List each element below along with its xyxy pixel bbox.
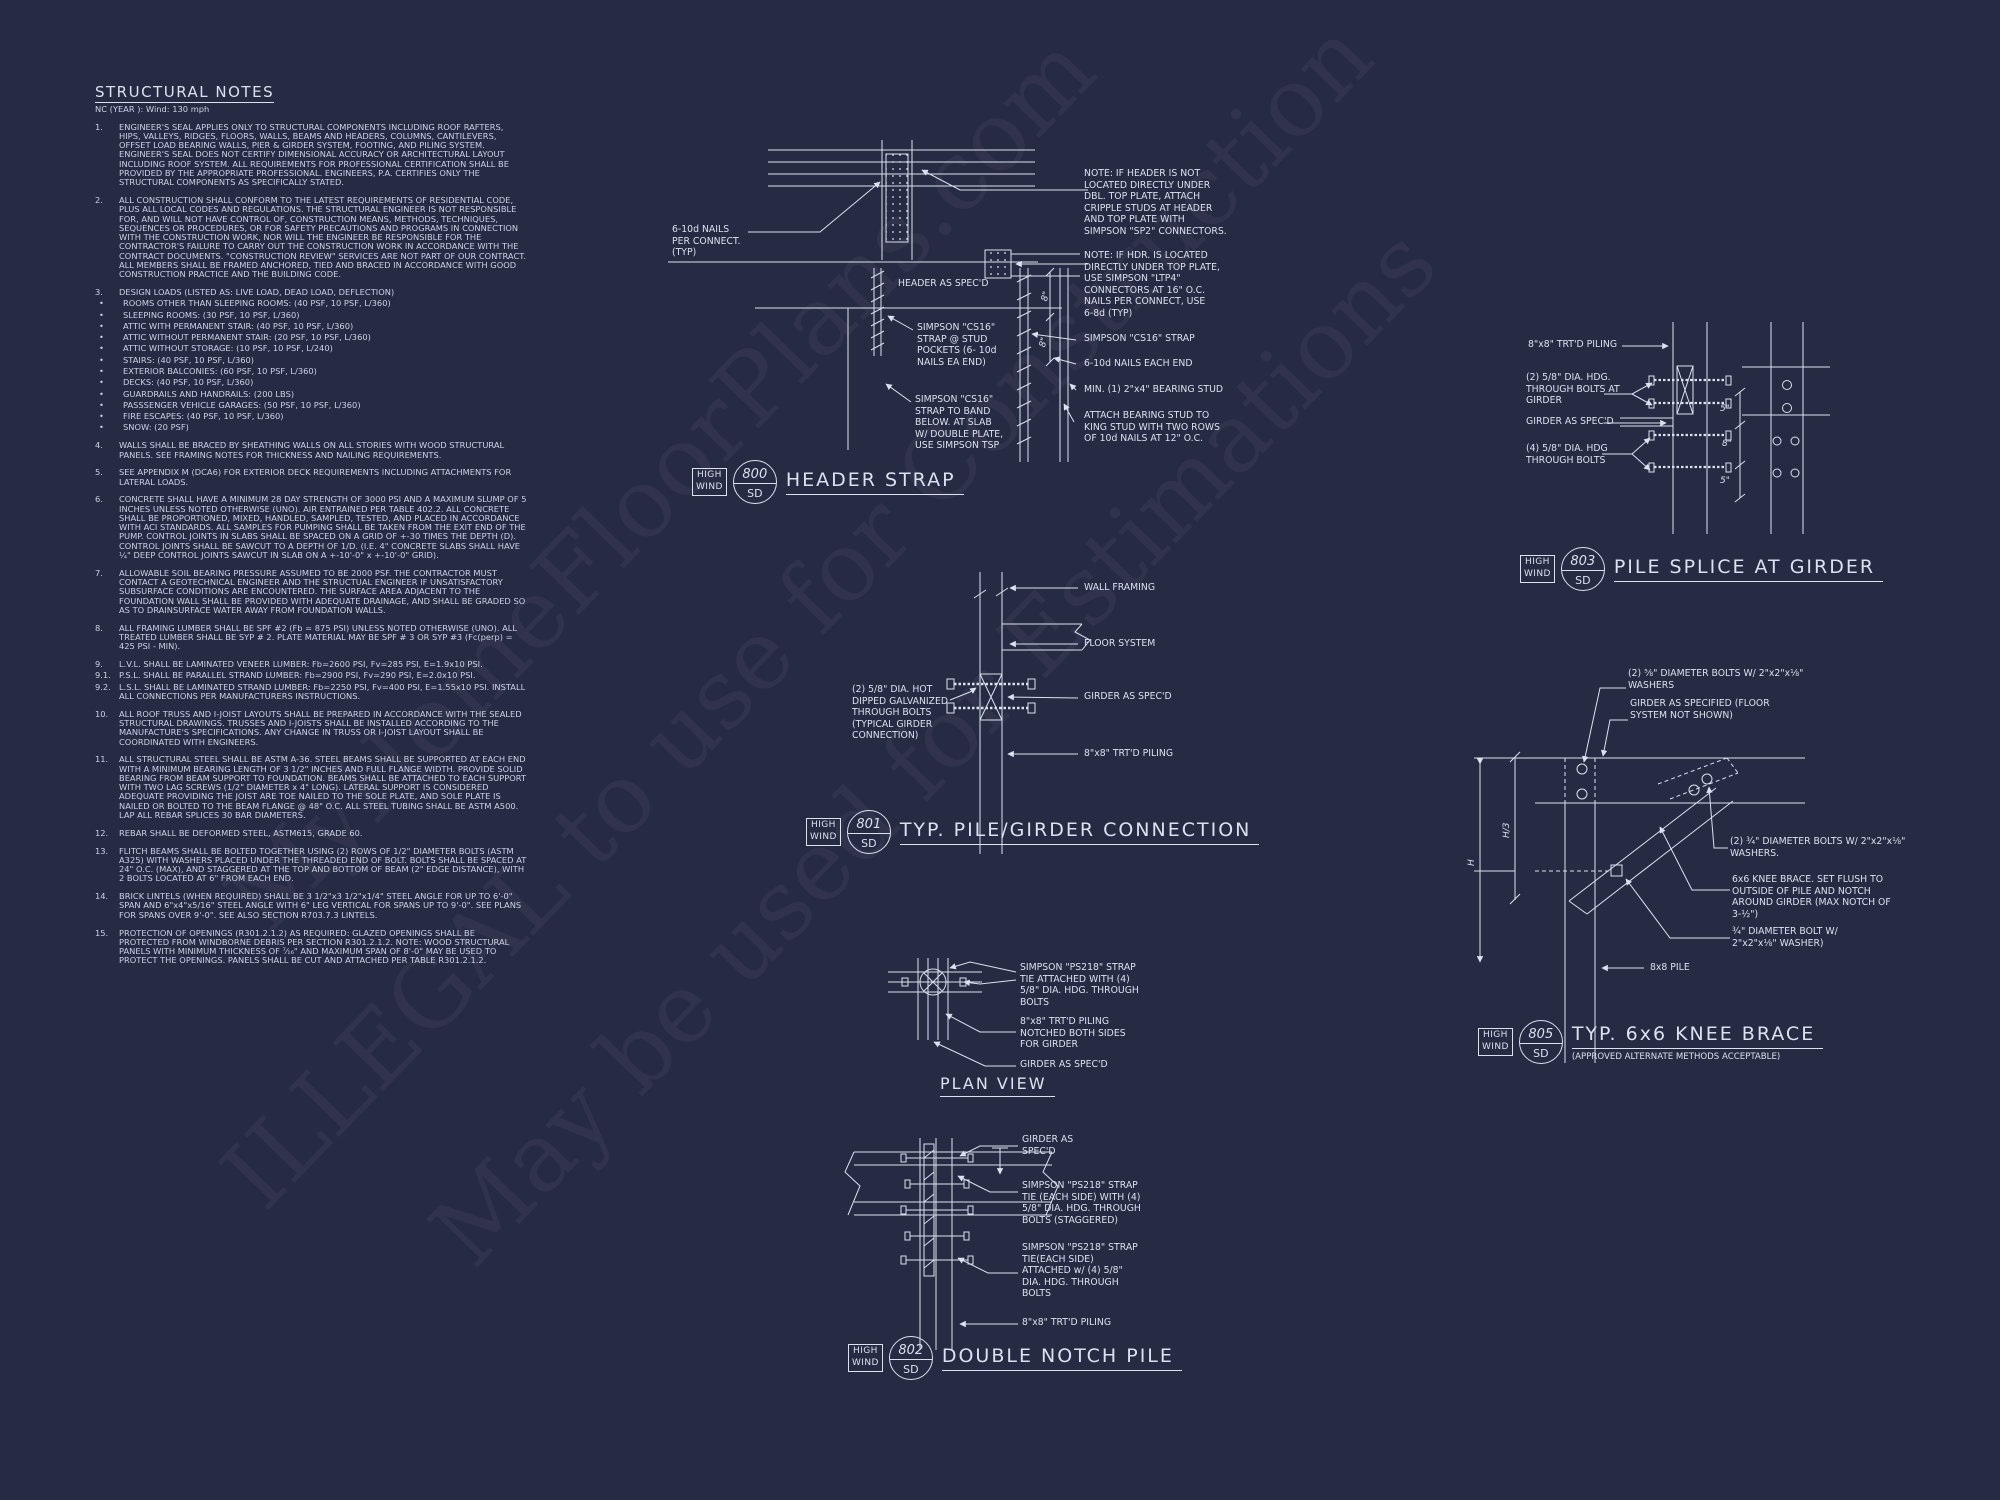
note-text: STAIRS: (40 PSF, 10 PSF, L/360) xyxy=(123,356,527,365)
note-item: 2. ALL CONSTRUCTION SHALL CONFORM TO THE… xyxy=(95,196,527,280)
detail-pile-girder-connection: (2) 5/8" DIA. HOT DIPPED GALVANIZED THRO… xyxy=(630,558,1450,868)
note-item: 5. SEE APPENDIX M (DCA6) FOR EXTERIOR DE… xyxy=(95,468,527,487)
note-text: EXTERIOR BALCONIES: (60 PSF, 10 PSF, L/3… xyxy=(123,367,527,376)
detail-sheet: SD xyxy=(734,484,776,503)
note-number: • xyxy=(95,356,120,365)
note-text: ALL CONSTRUCTION SHALL CONFORM TO THE LA… xyxy=(119,196,527,280)
note-item: 9.1. P.S.L. SHALL BE PARALLEL STRAND LUM… xyxy=(95,671,527,680)
dim-h: H xyxy=(1467,859,1477,866)
note-item: 3. DESIGN LOADS (LISTED AS: LIVE LOAD, D… xyxy=(95,288,527,297)
tag-high: HIGH xyxy=(697,470,722,482)
detail-title-pile-splice: HIGH WIND 803 SD PILE SPLICE AT GIRDER xyxy=(1520,547,1883,591)
detail-title: PILE SPLICE AT GIRDER xyxy=(1614,556,1883,582)
note-text: REBAR SHALL BE DEFORMED STEEL, ASTM615, … xyxy=(119,829,527,838)
detail-title-knee-brace: HIGH WIND 805 SD TYP. 6x6 KNEE BRACE (AP… xyxy=(1478,1020,1823,1064)
note-number: • xyxy=(95,390,120,399)
note-item: 9. L.V.L. SHALL BE LAMINATED VENEER LUMB… xyxy=(95,660,527,669)
tag-high: HIGH xyxy=(1483,1030,1508,1042)
label-through-bolts: (2) 5/8" DIA. HOT DIPPED GALVANIZED THRO… xyxy=(852,684,948,742)
label-piling-notched: 8"x8" TRT'D PILING NOTCHED BOTH SIDES FO… xyxy=(1020,1016,1126,1051)
blueprint-sheet: MyHomeFloorPlans.comILLEGAL to use for C… xyxy=(0,0,2000,1500)
note-number: 6. xyxy=(95,495,116,560)
label-girder-as-specd: GIRDER AS SPEC'D xyxy=(1020,1059,1108,1071)
note-item: • GUARDRAILS AND HANDRAILS: (200 LBS) xyxy=(95,390,527,399)
detail-number: 803 xyxy=(1562,548,1604,571)
dim-5in-bot: 5" xyxy=(1720,476,1730,486)
tag-high: HIGH xyxy=(853,1346,878,1358)
note-item: 6. CONCRETE SHALL HAVE A MINIMUM 28 DAY … xyxy=(95,495,527,560)
label-girder-as-specified: GIRDER AS SPECIFIED (FLOOR SYSTEM NOT SH… xyxy=(1630,698,1770,721)
detail-title: HEADER STRAP xyxy=(786,469,964,495)
detail-subtitle: (APPROVED ALTERNATE METHODS ACCEPTABLE) xyxy=(1572,1052,1823,1062)
detail-pile-splice: 8"x8" TRT'D PILING (2) 5/8" DIA. HDG. TH… xyxy=(1470,242,1930,597)
note-text: FLITCH BEAMS SHALL BE BOLTED TOGETHER US… xyxy=(119,847,527,884)
note-text: SNOW: (20 PSF) xyxy=(123,423,527,432)
tag-high: HIGH xyxy=(811,820,836,832)
note-number: 2. xyxy=(95,196,116,280)
label-header-as-specd: HEADER AS SPEC'D xyxy=(898,278,988,290)
high-wind-tag: HIGH WIND xyxy=(1478,1028,1513,1055)
note-item: • ROOMS OTHER THAN SLEEPING ROOMS: (40 P… xyxy=(95,299,527,308)
label-trtd-piling: 8"x8" TRT'D PILING xyxy=(1084,748,1173,760)
detail-bubble: 803 SD xyxy=(1561,547,1605,591)
detail-number: 805 xyxy=(1520,1021,1562,1044)
detail-title: PLAN VIEW xyxy=(940,1074,1055,1097)
note-item: • SLEEPING ROOMS: (30 PSF, 10 PSF, L/360… xyxy=(95,311,527,320)
detail-bubble: 800 SD xyxy=(733,460,777,504)
note-number: • xyxy=(95,378,120,387)
note-number: 14. xyxy=(95,892,116,920)
label-strap-stud-pockets: SIMPSON "CS16" STRAP @ STUD POCKETS (6- … xyxy=(917,322,997,368)
note-number: 5. xyxy=(95,468,116,487)
dim-8in-mid: 8" xyxy=(1722,439,1732,449)
note-item: • ATTIC WITHOUT STORAGE: (10 PSF, 10 PSF… xyxy=(95,344,527,353)
label-trtd-piling: 8"x8" TRT'D PILING xyxy=(1528,339,1617,351)
label-ps218-staggered: SIMPSON "PS218" STRAP TIE (EACH SIDE) WI… xyxy=(1022,1180,1141,1226)
note-number: 13. xyxy=(95,847,116,884)
note-number: 10. xyxy=(95,710,116,747)
dim-h3: H/3 xyxy=(1502,822,1512,838)
label-strap-to-band: SIMPSON "CS16" STRAP TO BAND BELOW. AT S… xyxy=(915,394,1003,452)
detail-sheet: SD xyxy=(1562,571,1604,590)
detail-title: TYP. 6x6 KNEE BRACE xyxy=(1572,1023,1823,1049)
note-item: 11. ALL STRUCTURAL STEEL SHALL BE ASTM A… xyxy=(95,755,527,820)
note-number: 11. xyxy=(95,755,116,820)
note-number: 3. xyxy=(95,288,116,297)
note-item: 10. ALL ROOF TRUSS AND I-JOIST LAYOUTS S… xyxy=(95,710,527,747)
note-text: ALLOWABLE SOIL BEARING PRESSURE ASSUMED … xyxy=(119,569,527,615)
note-item: 12. REBAR SHALL BE DEFORMED STEEL, ASTM6… xyxy=(95,829,527,838)
note-number: • xyxy=(95,311,120,320)
note-text: ALL FRAMING LUMBER SHALL BE SPF #2 (Fb =… xyxy=(119,624,527,652)
label-floor-system: FLOOR SYSTEM xyxy=(1084,638,1155,650)
tag-wind: WIND xyxy=(1482,1042,1509,1054)
note-item: 7. ALLOWABLE SOIL BEARING PRESSURE ASSUM… xyxy=(95,569,527,615)
label-girder-as-specd: GIRDER AS SPEC'D xyxy=(1084,691,1172,703)
label-cs16-strap: SIMPSON "CS16" STRAP xyxy=(1084,333,1195,345)
label-58-bolts-washers: (2) ⅝" DIAMETER BOLTS W/ 2"x2"x⅛" WASHER… xyxy=(1628,668,1803,691)
label-ps218-each-side: SIMPSON "PS218" STRAP TIE(EACH SIDE) ATT… xyxy=(1022,1242,1138,1300)
detail-number: 800 xyxy=(734,461,776,484)
label-attach-bearing-stud: ATTACH BEARING STUD TO KING STUD WITH TW… xyxy=(1084,410,1220,445)
detail-number: 802 xyxy=(890,1337,932,1360)
note-item: 8. ALL FRAMING LUMBER SHALL BE SPF #2 (F… xyxy=(95,624,527,652)
detail-sheet: SD xyxy=(848,834,890,853)
detail-double-notch-pile: GIRDER AS SPEC'D SIMPSON "PS218" STRAP T… xyxy=(840,1128,1500,1393)
detail-title-header-strap: HIGH WIND 800 SD HEADER STRAP xyxy=(692,460,964,504)
detail-title-double-notch: HIGH WIND 802 SD DOUBLE NOTCH PILE xyxy=(848,1336,1182,1380)
note-text: CONCRETE SHALL HAVE A MINIMUM 28 DAY STR… xyxy=(119,495,527,560)
high-wind-tag: HIGH WIND xyxy=(848,1344,883,1371)
notes-subtitle: NC (YEAR ): Wind: 130 mph xyxy=(95,105,527,114)
structural-notes: STRUCTURAL NOTES NC (YEAR ): Wind: 130 m… xyxy=(95,84,527,966)
note-text: FIRE ESCAPES: (40 PSF, 10 PSF, L/360) xyxy=(123,412,527,421)
note-item: • PASSSENGER VEHICLE GARAGES: (50 PSF, 1… xyxy=(95,401,527,410)
note-text: P.S.L. SHALL BE PARALLEL STRAND LUMBER: … xyxy=(119,671,527,680)
label-knee-brace-note: 6x6 KNEE BRACE. SET FLUSH TO OUTSIDE OF … xyxy=(1732,874,1891,920)
detail-title-plan-view: PLAN VIEW xyxy=(940,1074,1055,1097)
tag-wind: WIND xyxy=(852,1358,879,1370)
note-number: • xyxy=(95,333,120,342)
label-bearing-stud: MIN. (1) 2"x4" BEARING STUD xyxy=(1084,384,1223,396)
label-2-bolts-at-girder: (2) 5/8" DIA. HDG. THROUGH BOLTS AT GIRD… xyxy=(1526,372,1620,407)
detail-title-pile-girder: HIGH WIND 801 SD TYP. PILE/GIRDER CONNEC… xyxy=(806,810,1259,854)
detail-title: DOUBLE NOTCH PILE xyxy=(942,1345,1182,1371)
high-wind-tag: HIGH WIND xyxy=(692,468,727,495)
note-number: • xyxy=(95,344,120,353)
note-text: SLEEPING ROOMS: (30 PSF, 10 PSF, L/360) xyxy=(123,311,527,320)
note-text: ENGINEER'S SEAL APPLIES ONLY TO STRUCTUR… xyxy=(119,123,527,188)
note-text: PASSSENGER VEHICLE GARAGES: (50 PSF, 10 … xyxy=(123,401,527,410)
label-girder-as-specd: GIRDER AS SPEC'D xyxy=(1526,416,1614,428)
label-34-bolts-washers: (2) ¾" DIAMETER BOLTS W/ 2"x2"x⅛" WASHER… xyxy=(1730,836,1905,859)
note-item: 4. WALLS SHALL BE BRACED BY SHEATHING WA… xyxy=(95,441,527,460)
detail-bubble: 801 SD xyxy=(847,810,891,854)
note-number: • xyxy=(95,423,120,432)
note-item: • DECKS: (40 PSF, 10 PSF, L/360) xyxy=(95,378,527,387)
note-item: 14. BRICK LINTELS (WHEN REQUIRED) SHALL … xyxy=(95,892,527,920)
label-ps218-strap: SIMPSON "PS218" STRAP TIE ATTACHED WITH … xyxy=(1020,962,1139,1008)
note-text: ALL ROOF TRUSS AND I-JOIST LAYOUTS SHALL… xyxy=(119,710,527,747)
tag-wind: WIND xyxy=(810,832,837,844)
label-wall-framing: WALL FRAMING xyxy=(1084,582,1155,594)
note-text: ATTIC WITHOUT STORAGE: (10 PSF, 10 PSF, … xyxy=(123,344,527,353)
note-number: 9.2. xyxy=(95,683,116,702)
note-number: 9.1. xyxy=(95,671,116,680)
dim-5in-top: 5" xyxy=(1720,404,1730,414)
label-4-bolts: (4) 5/8" DIA. HDG THROUGH BOLTS xyxy=(1526,443,1608,466)
note-number: 7. xyxy=(95,569,116,615)
note-number: • xyxy=(95,322,120,331)
note-text: L.V.L. SHALL BE LAMINATED VENEER LUMBER:… xyxy=(119,660,527,669)
note-number: • xyxy=(95,401,120,410)
note-number: • xyxy=(95,412,120,421)
high-wind-tag: HIGH WIND xyxy=(806,818,841,845)
label-34-bolt-washer: ¾" DIAMETER BOLT W/ 2"x2"x⅛" WASHER) xyxy=(1732,926,1838,949)
note-text: ROOMS OTHER THAN SLEEPING ROOMS: (40 PSF… xyxy=(123,299,527,308)
note-text: ALL STRUCTURAL STEEL SHALL BE ASTM A-36.… xyxy=(119,755,527,820)
note-text: ATTIC WITHOUT PERMANENT STAIR: (20 PSF, … xyxy=(123,333,527,342)
note-item: • EXTERIOR BALCONIES: (60 PSF, 10 PSF, L… xyxy=(95,367,527,376)
tag-wind: WIND xyxy=(1524,569,1551,581)
notes-title: STRUCTURAL NOTES xyxy=(95,84,274,103)
note-text: PROTECTION OF OPENINGS (R301.2.1.2) AS R… xyxy=(119,929,527,966)
note-item: • STAIRS: (40 PSF, 10 PSF, L/360) xyxy=(95,356,527,365)
note-text: DECKS: (40 PSF, 10 PSF, L/360) xyxy=(123,378,527,387)
detail-bubble: 805 SD xyxy=(1519,1020,1563,1064)
note-item: 13. FLITCH BEAMS SHALL BE BOLTED TOGETHE… xyxy=(95,847,527,884)
note-item: • ATTIC WITH PERMANENT STAIR: (40 PSF, 1… xyxy=(95,322,527,331)
detail-sheet: SD xyxy=(1520,1044,1562,1063)
detail-bubble: 802 SD xyxy=(889,1336,933,1380)
high-wind-tag: HIGH WIND xyxy=(1520,555,1555,582)
note-text: SEE APPENDIX M (DCA6) FOR EXTERIOR DECK … xyxy=(119,468,527,487)
note-number: 12. xyxy=(95,829,116,838)
detail-sheet: SD xyxy=(890,1360,932,1379)
detail-title: TYP. PILE/GIRDER CONNECTION xyxy=(900,819,1260,845)
note-item: • ATTIC WITHOUT PERMANENT STAIR: (20 PSF… xyxy=(95,333,527,342)
label-note-header-under-plate: NOTE: IF HDR. IS LOCATED DIRECTLY UNDER … xyxy=(1084,250,1220,319)
note-item: • FIRE ESCAPES: (40 PSF, 10 PSF, L/360) xyxy=(95,412,527,421)
detail-knee-brace: (2) ⅝" DIAMETER BOLTS W/ 2"x2"x⅛" WASHER… xyxy=(1430,638,1950,1098)
note-text: GUARDRAILS AND HANDRAILS: (200 LBS) xyxy=(123,390,527,399)
note-text: ATTIC WITH PERMANENT STAIR: (40 PSF, 10 … xyxy=(123,322,527,331)
tag-high: HIGH xyxy=(1525,557,1550,569)
note-item: 9.2. L.S.L. SHALL BE LAMINATED STRAND LU… xyxy=(95,683,527,702)
note-number: • xyxy=(95,367,120,376)
note-number: 8. xyxy=(95,624,116,652)
detail-plan-view: SIMPSON "PS218" STRAP TIE ATTACHED WITH … xyxy=(870,948,1510,1113)
note-number: • xyxy=(95,299,120,308)
note-number: 15. xyxy=(95,929,116,966)
note-text: DESIGN LOADS (LISTED AS: LIVE LOAD, DEAD… xyxy=(119,288,527,297)
note-number: 1. xyxy=(95,123,116,188)
label-trtd-piling: 8"x8" TRT'D PILING xyxy=(1022,1317,1111,1329)
label-8x8-pile: 8x8 PILE xyxy=(1650,962,1690,974)
label-note-header-not-under-plate: NOTE: IF HEADER IS NOT LOCATED DIRECTLY … xyxy=(1084,168,1227,237)
note-number: 9. xyxy=(95,660,116,669)
label-girder-as-specd: GIRDER AS SPEC'D xyxy=(1022,1134,1073,1157)
note-item: 15. PROTECTION OF OPENINGS (R301.2.1.2) … xyxy=(95,929,527,966)
label-nails-each-end: 6-10d NAILS EACH END xyxy=(1084,358,1193,370)
note-text: L.S.L. SHALL BE LAMINATED STRAND LUMBER:… xyxy=(119,683,527,702)
note-text: BRICK LINTELS (WHEN REQUIRED) SHALL BE 3… xyxy=(119,892,527,920)
notes-list: 1. ENGINEER'S SEAL APPLIES ONLY TO STRUC… xyxy=(95,123,527,966)
detail-header-strap: 6-10d NAILS PER CONNECT. (TYP) NOTE: IF … xyxy=(660,132,1455,517)
note-text: WALLS SHALL BE BRACED BY SHEATHING WALLS… xyxy=(119,441,527,460)
detail-number: 801 xyxy=(848,811,890,834)
note-item: • SNOW: (20 PSF) xyxy=(95,423,527,432)
note-item: 1. ENGINEER'S SEAL APPLIES ONLY TO STRUC… xyxy=(95,123,527,188)
tag-wind: WIND xyxy=(696,482,723,494)
note-number: 4. xyxy=(95,441,116,460)
label-nails-per-connect: 6-10d NAILS PER CONNECT. (TYP) xyxy=(672,224,741,259)
